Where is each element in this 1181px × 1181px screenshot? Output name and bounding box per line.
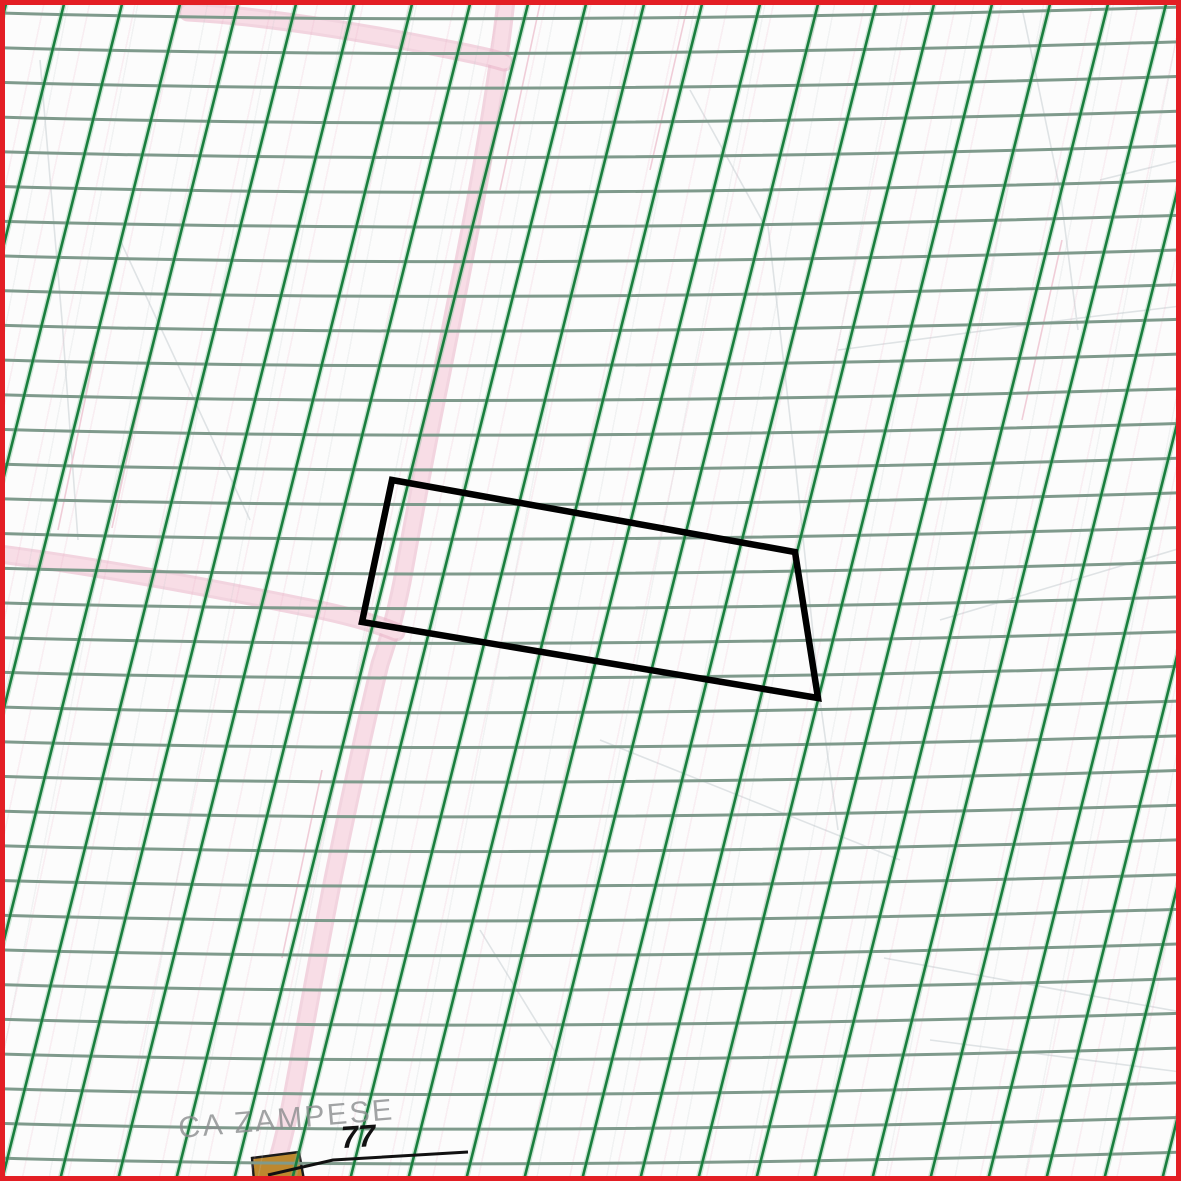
parcel-number-label: 77 — [340, 1118, 377, 1156]
selected-parcel-polygon[interactable] — [362, 480, 818, 698]
parcel-leader-line — [268, 1152, 468, 1175]
annotation-layer — [0, 0, 1181, 1181]
map-viewport[interactable]: CA ZAMPESE 77 — [0, 0, 1181, 1181]
